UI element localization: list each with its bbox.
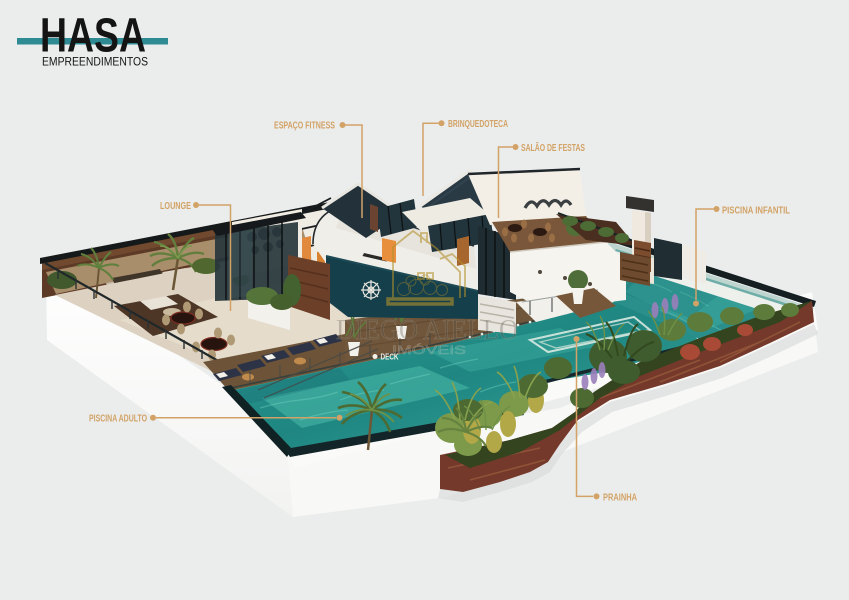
svg-text:ESPAÇO FITNESS: ESPAÇO FITNESS	[274, 121, 335, 132]
svg-text:BRINQUEDOTECA: BRINQUEDOTECA	[448, 119, 508, 130]
svg-text:SALÃO DE FESTAS: SALÃO DE FESTAS	[521, 141, 585, 154]
svg-text:IMÓVEIS: IMÓVEIS	[392, 344, 466, 357]
svg-text:PISCINA ADULTO: PISCINA ADULTO	[89, 414, 147, 425]
svg-text:EMPREENDIMENTOS: EMPREENDIMENTOS	[42, 57, 148, 69]
svg-text:DIEGO AIELLO: DIEGO AIELLO	[336, 314, 518, 346]
svg-text:PISCINA INFANTIL: PISCINA INFANTIL	[722, 206, 790, 217]
svg-text:HASA: HASA	[40, 10, 146, 63]
svg-text:DECK: DECK	[381, 352, 400, 362]
svg-text:PRAINHA: PRAINHA	[603, 492, 637, 503]
svg-text:LOUNGE: LOUNGE	[160, 201, 191, 212]
